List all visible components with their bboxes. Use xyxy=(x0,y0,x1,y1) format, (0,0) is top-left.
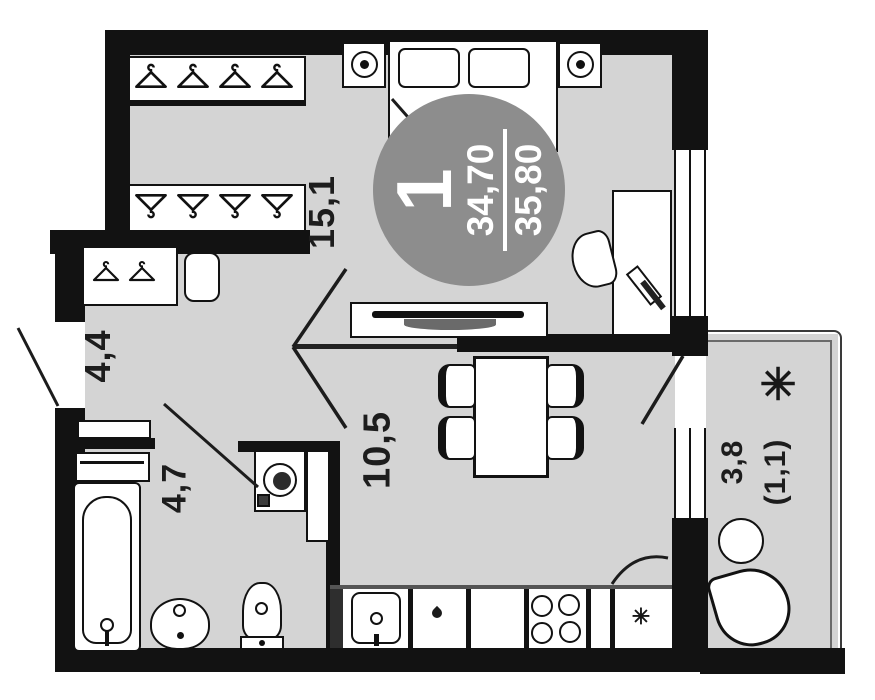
pillow-right xyxy=(468,48,530,88)
counter-divider xyxy=(408,589,413,648)
balcony-table xyxy=(718,518,764,564)
wall-bath-top-left xyxy=(58,438,155,449)
wall-bottom xyxy=(55,648,708,672)
stove-burner xyxy=(558,594,580,616)
toilet-base-dot xyxy=(259,640,265,646)
bedroom-window xyxy=(674,150,706,316)
bath-shelf xyxy=(75,452,150,482)
hanger-icon xyxy=(260,190,294,220)
pillow-left xyxy=(398,48,460,88)
floor-plan: ✳ ✳ 15,1 4,4 4,7 10,5 3,8 (1,1) 1 34,70 … xyxy=(0,0,875,700)
room-count: 1 xyxy=(389,168,459,211)
bath-door-leaf xyxy=(306,450,330,542)
bathtub-drain-stem xyxy=(105,630,109,646)
balcony-door-window xyxy=(674,428,706,518)
hanger-icon xyxy=(218,190,252,220)
hanger-icon xyxy=(260,62,294,92)
kitchen-area-label: 10,5 xyxy=(357,411,400,489)
stove-burner xyxy=(531,622,553,644)
hall-shelf xyxy=(77,420,151,439)
toilet-button xyxy=(255,602,268,615)
balcony-area-label: 3,8 xyxy=(716,440,750,485)
bath-sink-dot xyxy=(177,632,184,639)
window-mullion xyxy=(689,428,692,518)
wall-right-top xyxy=(672,30,708,150)
hanger-icon xyxy=(176,190,210,220)
hanger-icon xyxy=(92,260,120,284)
wall-right-bottom xyxy=(672,518,708,650)
living-area: 34,70 xyxy=(462,144,501,237)
hallway-area-label: 4,4 xyxy=(77,329,119,382)
wall-hall-left xyxy=(55,247,85,322)
washer-drum-inner xyxy=(273,472,291,490)
snowflake-icon: ✳ xyxy=(632,604,650,630)
counter-divider xyxy=(610,589,615,648)
dining-table xyxy=(473,356,549,478)
bedroom-area-label: 15,1 xyxy=(301,175,343,249)
bath-shelf-line xyxy=(80,461,144,464)
counter-end-panel xyxy=(330,589,343,648)
hanger-icon xyxy=(218,62,252,92)
dining-chair xyxy=(546,364,584,408)
hall-stool xyxy=(184,252,220,302)
dining-chair xyxy=(438,364,476,408)
wall-balcony-bottom xyxy=(700,648,845,674)
outside-corner-mask xyxy=(50,53,108,230)
lamp-dot xyxy=(576,60,585,69)
unit-info-content: 1 34,70 35,80 xyxy=(373,94,565,286)
hanger-icon xyxy=(134,190,168,220)
total-area: 35,80 xyxy=(510,144,549,237)
tv-lens xyxy=(404,319,496,330)
stove-burner xyxy=(559,621,581,643)
kitchen-faucet-stem xyxy=(374,634,379,646)
desk xyxy=(612,190,672,336)
fraction-bar xyxy=(503,129,507,251)
flower-icon: ✳ xyxy=(760,360,797,411)
dining-chair xyxy=(438,416,476,460)
counter-divider xyxy=(586,589,591,648)
unit-info-badge: 1 34,70 35,80 xyxy=(373,94,565,286)
wardrobe-top-base xyxy=(128,100,306,106)
kitchen-faucet xyxy=(370,612,383,625)
wall-room-divider-thin xyxy=(295,344,457,349)
area-fraction: 34,70 35,80 xyxy=(462,129,549,251)
hanger-icon xyxy=(134,62,168,92)
balcony-area-reduced-label: (1,1) xyxy=(759,439,793,506)
counter-divider xyxy=(524,589,529,648)
dining-chair xyxy=(546,416,584,460)
wall-left-upper xyxy=(105,30,130,240)
window-mullion xyxy=(689,150,692,316)
stove-burner xyxy=(531,595,553,617)
hanger-icon xyxy=(176,62,210,92)
hanger-icon xyxy=(128,260,156,284)
counter-divider xyxy=(466,589,471,648)
bathroom-area-label: 4,7 xyxy=(156,463,195,513)
washer-drawer xyxy=(257,494,270,507)
bath-sink-faucet xyxy=(173,604,186,617)
tv-icon xyxy=(372,311,524,318)
lamp-dot xyxy=(360,60,369,69)
